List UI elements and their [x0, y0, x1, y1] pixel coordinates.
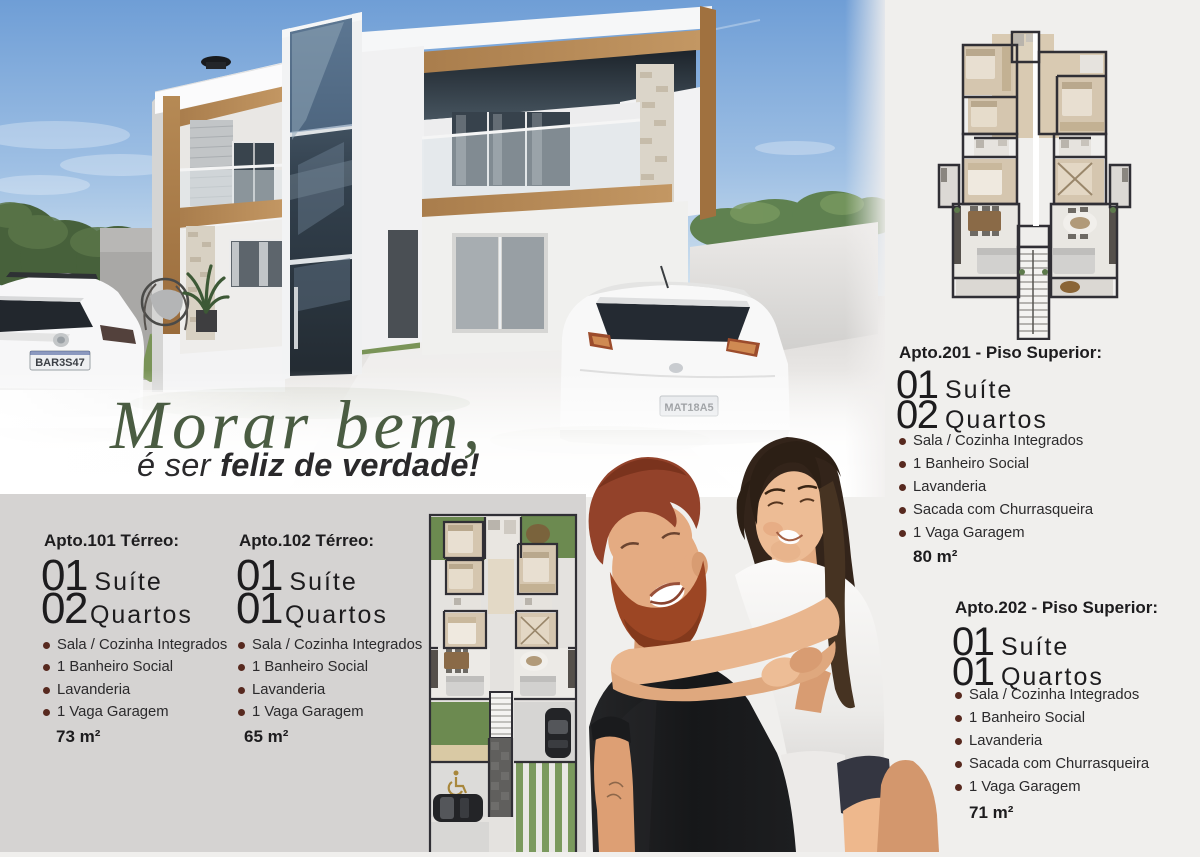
svg-text:BAR3S47: BAR3S47	[35, 357, 85, 369]
